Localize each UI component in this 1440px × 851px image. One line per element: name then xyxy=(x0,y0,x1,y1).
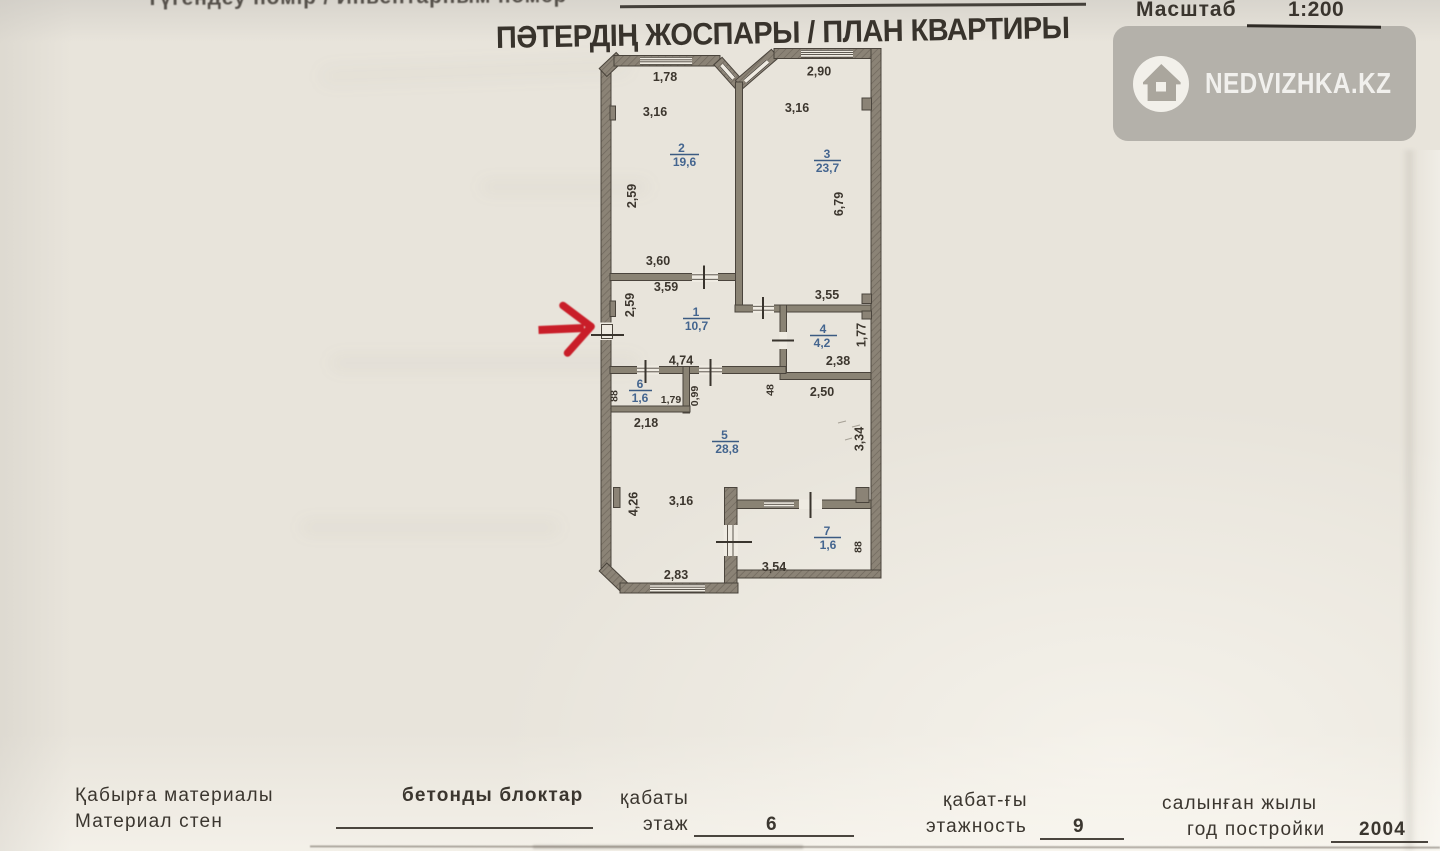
svg-text:10,7: 10,7 xyxy=(685,319,709,333)
svg-text:3,60: 3,60 xyxy=(646,254,670,268)
svg-text:1,78: 1,78 xyxy=(653,70,677,84)
svg-text:2,83: 2,83 xyxy=(664,568,688,582)
svg-text:4: 4 xyxy=(820,322,827,336)
svg-text:2,50: 2,50 xyxy=(810,385,834,399)
svg-text:4,2: 4,2 xyxy=(814,336,831,350)
svg-text:1,77: 1,77 xyxy=(855,323,869,347)
svg-text:23,7: 23,7 xyxy=(816,161,840,175)
svg-text:3,54: 3,54 xyxy=(762,560,786,574)
svg-text:4,74: 4,74 xyxy=(669,354,693,368)
svg-text:3,55: 3,55 xyxy=(815,288,839,302)
svg-text:6: 6 xyxy=(637,377,644,391)
svg-text:2,59: 2,59 xyxy=(623,293,637,317)
svg-text:3,59: 3,59 xyxy=(654,280,678,294)
svg-text:1,6: 1,6 xyxy=(820,538,837,552)
svg-text:2: 2 xyxy=(678,141,685,155)
svg-text:1,79: 1,79 xyxy=(661,394,682,406)
svg-text:5: 5 xyxy=(721,428,728,442)
svg-text:6,79: 6,79 xyxy=(832,192,846,216)
svg-text:28,8: 28,8 xyxy=(715,442,739,456)
svg-text:48: 48 xyxy=(765,384,777,396)
svg-text:3: 3 xyxy=(824,147,831,161)
svg-text:2,38: 2,38 xyxy=(826,354,850,368)
svg-text:2,90: 2,90 xyxy=(807,65,831,79)
svg-text:2,18: 2,18 xyxy=(634,416,658,430)
svg-text:4,26: 4,26 xyxy=(627,492,641,516)
svg-text:0,99: 0,99 xyxy=(689,386,701,407)
svg-text:3,16: 3,16 xyxy=(669,494,693,508)
svg-text:88: 88 xyxy=(609,390,621,402)
svg-text:3,34: 3,34 xyxy=(853,427,867,451)
svg-text:3,16: 3,16 xyxy=(785,101,809,115)
svg-text:7: 7 xyxy=(824,524,831,538)
svg-text:3,16: 3,16 xyxy=(643,105,667,119)
svg-text:2,59: 2,59 xyxy=(625,184,639,208)
svg-text:1,6: 1,6 xyxy=(632,391,649,405)
svg-text:19,6: 19,6 xyxy=(673,155,697,169)
svg-text:88: 88 xyxy=(853,541,865,553)
svg-text:1: 1 xyxy=(693,305,700,319)
